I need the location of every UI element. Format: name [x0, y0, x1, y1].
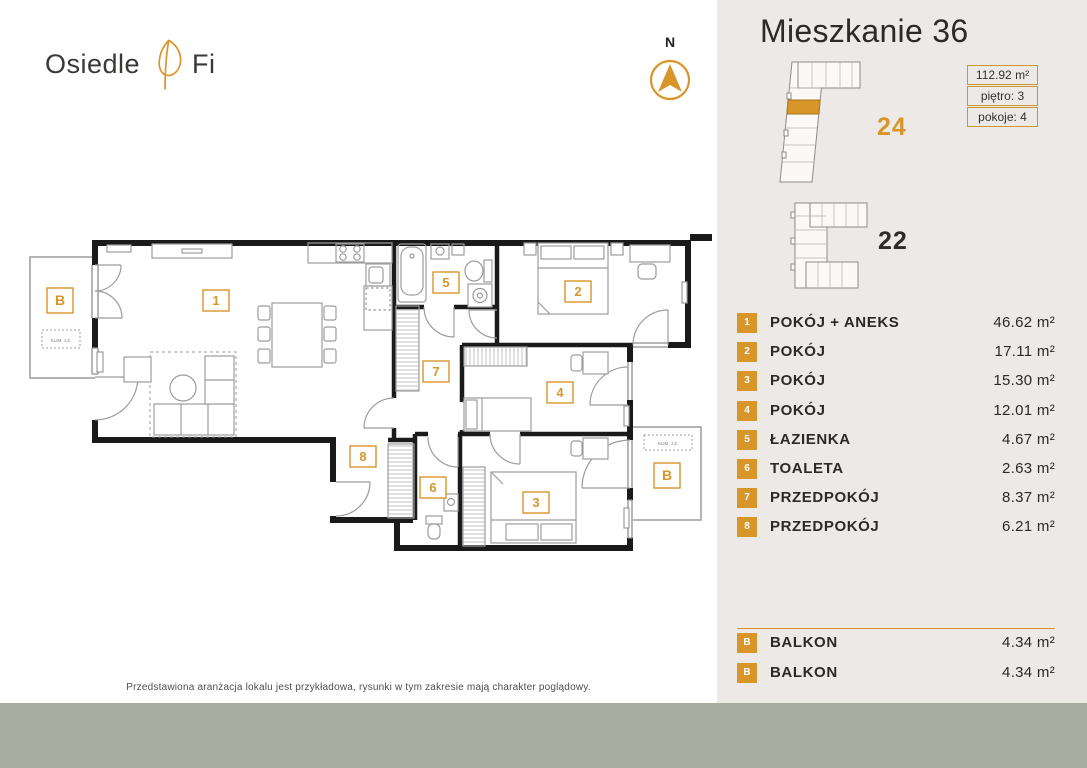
room-name: POKÓJ + ANEKS [770, 313, 899, 333]
building-number-other: 22 [878, 227, 908, 256]
room-list-row: 5 ŁAZIENKA 4.67 m² [737, 430, 1055, 450]
balcony-area: 4.34 m² [1002, 633, 1055, 653]
svg-text:B: B [55, 292, 65, 308]
room-label-3: 3 [523, 492, 549, 513]
klim-unit-label-left: KLIM. J.Z. [51, 338, 72, 343]
room-label-4: 4 [547, 382, 573, 403]
room-area: 12.01 m² [993, 401, 1055, 421]
page: Osiedle Fi N KLIM. J. [0, 0, 1087, 768]
room-list-row: 1 POKÓJ + ANEKS 46.62 m² [737, 313, 1055, 333]
room-area: 2.63 m² [1002, 459, 1055, 479]
balcony-divider [737, 628, 1055, 629]
apartment-panel: Mieszkanie 36 [717, 0, 1087, 703]
svg-text:2: 2 [574, 284, 581, 299]
rooms-count-badge: pokoje: 4 [967, 107, 1038, 127]
balcony-area: 4.34 m² [1002, 663, 1055, 683]
info-badges: 112.92 m² piętro: 3 pokoje: 4 [967, 65, 1038, 128]
floor-badge: piętro: 3 [967, 86, 1038, 106]
room-list-row: 3 POKÓJ 15.30 m² [737, 371, 1055, 391]
svg-text:3: 3 [532, 495, 539, 510]
room-name: PRZEDPOKÓJ [770, 517, 879, 537]
room-name: POKÓJ [770, 401, 826, 421]
room-label-2: 2 [565, 281, 591, 302]
room-label-6: 6 [420, 477, 446, 498]
building-number-current: 24 [877, 113, 907, 142]
svg-text:6: 6 [429, 480, 436, 495]
room-label-7: 7 [423, 361, 449, 382]
room-number-badge: 3 [737, 371, 757, 391]
room-name: ŁAZIENKA [770, 430, 851, 450]
room-list-row: 6 TOALETA 2.63 m² [737, 459, 1055, 479]
room-list-row: 2 POKÓJ 17.11 m² [737, 342, 1055, 362]
balcony-badge: B [737, 633, 757, 653]
room-area: 8.37 m² [1002, 488, 1055, 508]
room-number-badge: 6 [737, 459, 757, 479]
wall-tick [690, 234, 712, 241]
building-22-outline [791, 203, 867, 288]
balcony-name: BALKON [770, 633, 838, 653]
balcony-label-right: B [654, 463, 680, 488]
floor-plan: KLIM. J.Z. KLIM. J.Z. [0, 0, 717, 703]
room-number-badge: 5 [737, 430, 757, 450]
svg-text:1: 1 [212, 293, 219, 308]
disclaimer-text: Przedstawiona aranżacja lokalu jest przy… [0, 682, 717, 693]
room-area: 46.62 m² [993, 313, 1055, 333]
balcony-badge: B [737, 663, 757, 683]
svg-text:7: 7 [432, 364, 439, 379]
room-number-badge: 4 [737, 401, 757, 421]
balcony-label-left: B [47, 288, 73, 313]
klim-unit-label-right: KLIM. J.Z. [658, 441, 679, 446]
room-label-5: 5 [433, 272, 459, 293]
room-area: 17.11 m² [995, 342, 1055, 362]
room-area: 15.30 m² [993, 371, 1055, 391]
room-number-badge: 8 [737, 517, 757, 537]
highlighted-unit [787, 100, 820, 114]
building-24-outline [780, 62, 860, 182]
room-name: POKÓJ [770, 371, 826, 391]
room-name: PRZEDPOKÓJ [770, 488, 879, 508]
room-name: POKÓJ [770, 342, 826, 362]
room-number-badge: 2 [737, 342, 757, 362]
svg-text:B: B [662, 467, 672, 483]
balcony-name: BALKON [770, 663, 838, 683]
room-number-badge: 7 [737, 488, 757, 508]
svg-text:8: 8 [359, 449, 366, 464]
svg-text:5: 5 [442, 275, 449, 290]
room-list-row: 8 PRZEDPOKÓJ 6.21 m² [737, 517, 1055, 537]
room-name: TOALETA [770, 459, 844, 479]
balcony-list-row: B BALKON 4.34 m² [737, 663, 1055, 683]
room-label-8: 8 [350, 446, 376, 467]
contact-footer: Biuro sprzedaży: ul. Szafrana 5a Lokal U… [0, 703, 1087, 768]
svg-text:4: 4 [556, 385, 564, 400]
room-area: 4.67 m² [1002, 430, 1055, 450]
room-list-row: 7 PRZEDPOKÓJ 8.37 m² [737, 488, 1055, 508]
room-list-row: 4 POKÓJ 12.01 m² [737, 401, 1055, 421]
room-label-1: 1 [203, 290, 229, 311]
room-area: 6.21 m² [1002, 517, 1055, 537]
area-badge: 112.92 m² [967, 65, 1038, 85]
room-number-badge: 1 [737, 313, 757, 333]
balcony-list-row: B BALKON 4.34 m² [737, 633, 1055, 653]
